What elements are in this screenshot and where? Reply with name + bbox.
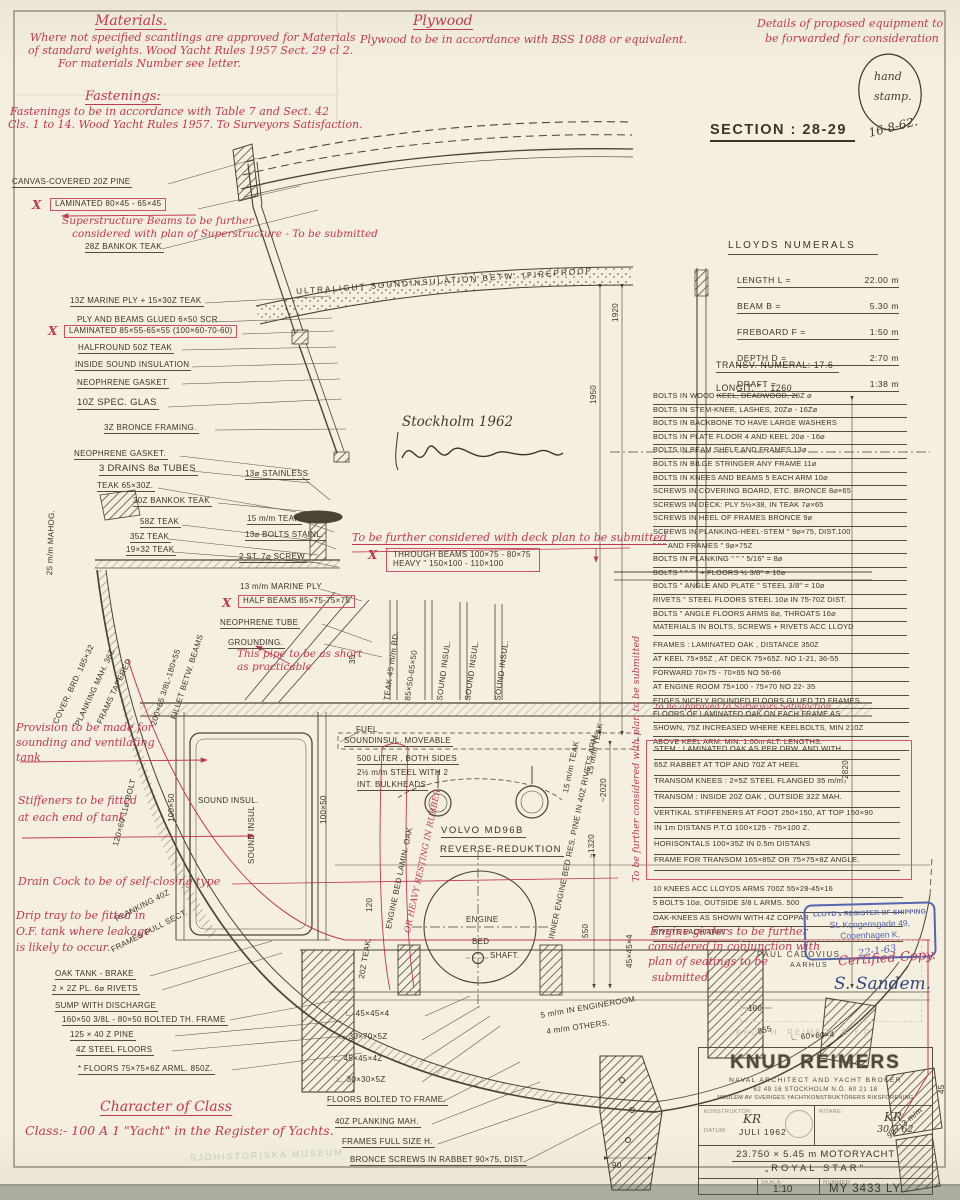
dim-45x45x4: 45×45×4	[626, 932, 635, 968]
label-laminated-top: LAMINATED 80×45 - 65×45	[50, 198, 166, 211]
lloyds-numerals-title: LLOYDS NUMERALS	[728, 240, 878, 255]
lloyds-row: FREBOARD F =1:50 m	[737, 314, 899, 340]
label-bolts13: 13⌀ BOLTS STAINL.	[245, 531, 326, 541]
label-canvas-covered: CANVAS-COVERED 20Z PINE	[12, 178, 132, 188]
architect-subtitle: NAVAL ARCHITECT AND YACHT BROKER	[699, 1077, 932, 1084]
hand-stamp-word2: stamp.	[874, 90, 912, 103]
spec-row: STEM : LAMINATED OAK AS PER DRW. AND WIT…	[654, 744, 900, 760]
label-100x50-b: 100×50	[320, 793, 329, 824]
label-bronce-framing: 3Z BRONCE FRAMING.	[104, 424, 199, 434]
label-teak35: 35Z TEAK	[130, 533, 171, 543]
spec-row: 65Z RABBET AT TOP AND 70Z AT HEEL	[654, 760, 900, 776]
spec-row: TRANSOM KNEES : 2×5Z STEEL FLANGED 35 m/…	[654, 776, 900, 792]
equipment-line2: be forwarded for consideration	[765, 33, 939, 45]
lloyds-row: BEAM B =5.30 m	[737, 288, 899, 314]
through-beams-box: THROUGH BEAMS 100×75 - 80×75 HEAVY " 150…	[386, 548, 540, 572]
spec-row: FORWARD 70×75 - 70×65 NO 56-66	[653, 668, 909, 682]
label-bronce-screws: BRONCE SCREWS IN RABBET 90×75, DIST.	[350, 1156, 527, 1166]
label-soundinsul-moveable: SOUNDINSUL. MOVEABLE	[344, 737, 453, 747]
red-superstructure-note1: Superstructure Beams to be further	[62, 216, 254, 228]
red-pipe-note1: This pipe to be as short	[237, 649, 362, 661]
label-neoprene-gasket2: NEOPHRENE GASKET.	[74, 450, 168, 460]
spec-row: AT KEEL 75×95Z , AT DECK 75×65Z. NO 1-21…	[653, 654, 909, 668]
label-halfround: HALFROUND 50Z TEAK	[78, 344, 174, 354]
red-deck-plan-note: To be further considered with deck plan …	[352, 532, 667, 545]
drawing-sheet: Materials. Where not specified scantling…	[0, 0, 960, 1200]
red-stiffeners-note2: at each end of tank	[18, 812, 125, 824]
spec-row: FRAMES : LAMINATED OAK , DISTANCE 350Z	[653, 640, 909, 654]
architect-member-line: MEDLEM AV SVERIGES YACHTKONSTRUKTÖRERS R…	[699, 1095, 932, 1101]
faint-stamp-box	[740, 940, 922, 1022]
spec-row: SCREWS IN COVERING BOARD, ETC. BRONCE 8⌀…	[653, 486, 907, 500]
label-bankok28: 28Z BANKOK TEAK	[85, 243, 164, 253]
label-laminated-mid: LAMINATED 85×55-65×55 (100×60-70-60)	[64, 325, 237, 338]
dim-120: 120	[366, 896, 375, 912]
spec-row: AT ENGINE ROOM 75×100 - 75×70 NO 22- 35	[653, 682, 909, 696]
red-x-mark: X	[48, 324, 57, 338]
spec-row: BOLTS " ANGLE FLOORS ARMS 8⌀, THROATS 16…	[653, 609, 907, 623]
dim-100: 100	[748, 1005, 764, 1014]
materials-line3: For materials Number see letter.	[58, 58, 241, 70]
label-angle1: ∟ 45×45×4	[345, 1010, 391, 1019]
red-class-title: Character of Class	[100, 1100, 232, 1116]
label-stainless13: 13⌀ STAINLESS	[245, 470, 310, 480]
label-floors-bolted: FLOORS BOLTED TO FRAME.	[327, 1096, 448, 1106]
label-pine125: 125 × 40 Z PINE	[70, 1031, 136, 1041]
stem-spec-list: STEM : LAMINATED OAK AS PER DRW. AND WIT…	[654, 744, 900, 871]
dim-1950: 1950	[590, 383, 599, 404]
spec-row: BOLTS IN PLANKING " " " 5/16" = 8⌀	[653, 554, 907, 568]
dim-550: 550	[582, 922, 591, 938]
materials-title: Materials.	[95, 14, 167, 30]
red-drip-tray-note3: is likely to occur.	[16, 942, 110, 954]
label-marine-ply13: 13Z MARINE PLY + 15×30Z TEAK	[70, 297, 204, 307]
spec-row: BOLTS IN BILGE STRINGER ANY FRAME 11⌀	[653, 459, 907, 473]
lloyds-transv: TRANSV. NUMERAL: 17.6	[716, 360, 839, 373]
roof-curves	[233, 122, 633, 201]
label-bolted160: 160×50 3/8L - 80×50 BOLTED TH. FRAME	[62, 1016, 228, 1026]
label-oak-tank: OAK TANK - BRAKE	[55, 970, 136, 980]
label-frames-full-size: FRAMES FULL SIZE H.	[342, 1138, 435, 1148]
spec-row: SHOWN, 75Z INCREASED WHERE KEELBOLTS, MI…	[653, 723, 909, 737]
skala-value: 1:10	[773, 1184, 792, 1195]
dim-1920: 1920	[612, 301, 621, 322]
spec-row: 10 KNEES ACC LLOYDS ARMS 700Z 55×28-45×1…	[653, 884, 903, 898]
label-planking-mah40: 40Z PLANKING MAH.	[335, 1118, 421, 1128]
spec-row: BOLTS IN STEM-KNEE, LASHES, 20Z⌀ - 16Z⌀	[653, 405, 907, 419]
fastenings-title: Fastenings:	[85, 90, 161, 105]
fastenings-line1: Fastenings to be in accordance with Tabl…	[10, 106, 329, 118]
label-neoprene-tube: NEOPHRENE TUBE	[220, 619, 300, 629]
datum-value: JULI 1962	[739, 1127, 787, 1137]
spec-row: SCREWS IN HEEL OF FRAMES BRONCE 9⌀	[653, 513, 907, 527]
label-drains: 3 DRAINS 8⌀ TUBES	[99, 464, 198, 476]
dim-90: 90	[612, 1162, 624, 1171]
label-angle2: ∟ 30×70×5Z	[338, 1033, 390, 1042]
red-pipe-note2: as practicable	[237, 662, 312, 674]
dim-35: 35	[349, 653, 358, 665]
architect-name: KNUD REIMERS	[699, 1052, 932, 1074]
spec-row: BOLTS IN BACKBONE TO HAVE LARGE WASHERS	[653, 418, 907, 432]
plywood-body: Plywood to be in accordance with BSS 108…	[360, 34, 687, 46]
spec-row: " " " AND FRAMES " 9⌀×75Z	[653, 541, 907, 555]
fastenings-line2: Cls. 1 to 14. Wood Yacht Rules 1957. To …	[8, 119, 363, 131]
label-teak1932: 19×32 TEAK	[126, 546, 176, 556]
architect-signature	[402, 446, 563, 458]
spec-row: FRAME FOR TRANSOM 165×85Z OR 75×75×8Z AN…	[654, 855, 900, 871]
label-angle4: ∟ 30×30×5Z	[336, 1076, 388, 1085]
spec-row: IN 1m DISTANS P.T.O 100×125 - 75×100 Z.	[654, 823, 900, 839]
bolts-spec-list: BOLTS IN WOOD KEEL, DEADWOOD, 20Z ⌀BOLTS…	[653, 391, 907, 636]
spec-row: SCREWS IN PLANKING-HEEL-STEM " 9⌀×75, DI…	[653, 527, 907, 541]
red-x-mark: X	[222, 596, 231, 610]
red-provision-note1: Provision to be made for	[16, 722, 153, 734]
dim-2020: ~2020	[600, 776, 609, 802]
spec-row: BOLTS IN PLATE FLOOR 4 AND KEEL 20⌀ - 16…	[653, 432, 907, 446]
plywood-title: Plywood	[413, 14, 473, 30]
spec-row: MATERIALS IN BOLTS, SCREWS + RIVETS ACC …	[653, 622, 907, 636]
faint-round-stamp	[785, 1110, 813, 1138]
datum-label: DATUM:	[704, 1128, 727, 1134]
red-side-vertical-note: To be further considered with plan to be…	[632, 636, 642, 882]
label-half-beams: HALF BEAMS 85×75-75×75	[238, 595, 355, 608]
label-steel-bulkheads2: INT. BULKHEADS	[357, 781, 428, 791]
red-provision-note2: sounding and ventilating	[16, 737, 155, 749]
architect-phones: 62 49 16 STOCKHOLM N.Ö. 60 21 18	[699, 1086, 932, 1093]
spec-row: BOLTS IN BEAM SHELF AND FRAMES 13⌀	[653, 445, 907, 459]
konstruktor-value: KR	[743, 1112, 761, 1126]
frames-red-note: to be approved to Surveyors Satisfaction…	[655, 703, 834, 712]
materials-line1: Where not specified scantlings are appro…	[30, 32, 356, 44]
label-engine: ENGINE	[466, 916, 500, 925]
label-through-beams2: HEAVY " 150×100 - 110×100	[393, 560, 533, 569]
dim-1320: ~1320	[588, 832, 597, 858]
hand-stamp-word1: hand	[874, 70, 902, 83]
red-provision-note3: tank	[16, 752, 41, 764]
label-500liter: 500 LITER , BOTH SIDES	[357, 755, 459, 765]
section-title: SECTION : 28-29	[710, 122, 855, 142]
label-angle3: ∟ 45×45×4Z	[333, 1055, 385, 1064]
spec-row: VERTIKAL STIFFENERS AT FOOT 250×150, AT …	[654, 808, 900, 824]
label-100x50-a: 100×50	[168, 791, 177, 822]
red-class-line: Class:- 100 A 1 "Yacht" in the Register …	[25, 1124, 334, 1138]
label-floors75: * FLOORS 75×75×6Z ARML. 850Z.	[78, 1065, 215, 1075]
label-screw7: 2 ST. 7⌀ SCREW	[239, 553, 307, 563]
spec-row: RIVETS " STEEL FLOORS STEEL 10⌀ IN 75-70…	[653, 595, 907, 609]
label-shaft: SHAFT.	[490, 952, 521, 961]
spec-row: BOLTS " ANGLE AND PLATE " STEEL 3/8" = 1…	[653, 581, 907, 595]
spec-row: BOLTS " " " " + FLOORS ½ 3/8" = 10⌀	[653, 568, 907, 582]
spec-row: TRANSOM : INSIDE 20Z OAK , OUTSIDE 32Z M…	[654, 792, 900, 808]
spec-row: BOLTS IN WOOD KEEL, DEADWOOD, 20Z ⌀	[653, 391, 907, 405]
label-sump: SUMP WITH DISCHARGE	[55, 1002, 158, 1012]
label-sound-insul-tank2: SOUND INSUL	[248, 804, 257, 864]
red-stiffeners-note1: Stiffeners to be fitted	[18, 795, 137, 807]
red-x-mark: X	[32, 198, 41, 212]
label-teak15: 15 m/m TEAK	[247, 515, 302, 525]
frames-spec-list: FRAMES : LAMINATED OAK , DISTANCE 350ZAT…	[653, 640, 909, 751]
spec-row: BOLTS IN KNEES AND BEAMS 5 EACH ARM 10⌀	[653, 473, 907, 487]
dim-45: 45	[938, 1083, 947, 1095]
lloyds-row: LENGTH L =22.00 m	[737, 262, 899, 288]
materials-line2: of standard weights. Wood Yacht Rules 19…	[28, 45, 353, 57]
stockholm-signature-text: Stockholm 1962	[402, 414, 513, 430]
label-teak58: 58Z TEAK	[140, 518, 181, 528]
label-inside-sound: INSIDE SOUND INSULATION	[75, 361, 191, 371]
boat-name: „ROYAL STAR"	[699, 1163, 932, 1174]
equipment-line1: Details of proposed equipment to	[757, 18, 943, 30]
label-steel-floors: 4Z STEEL FLOORS	[76, 1046, 154, 1056]
ritare-label: RITARE:	[819, 1109, 843, 1115]
girders-note-line1: Engine girders to be further	[650, 926, 808, 938]
red-drain-cock-note: Drain Cock to be of self-closing type	[18, 876, 220, 888]
label-bankok30: 30Z BANKOK TEAK	[133, 497, 212, 507]
dim-2820: ~2820	[842, 758, 851, 784]
label-fuel: FUEL	[356, 726, 380, 735]
label-bed: BED	[472, 938, 491, 947]
girders-note-line4: submitted	[652, 972, 708, 984]
label-pl2x2: 2 × 2Z PL. 6⌀ RIVETS	[52, 985, 140, 995]
label-neoprene-gasket1: NEOPHRENE GASKET	[77, 379, 169, 389]
spec-row: HORISONTALS 100×35Z IN 0.5m DISTANS	[654, 839, 900, 855]
spec-row: SCREWS IN DECK: PLY 5½×38, IN TEAK 7⌀×65	[653, 500, 907, 514]
red-superstructure-note2: considered with plan of Superstructure -…	[72, 229, 378, 241]
red-x-mark: X	[368, 548, 377, 562]
label-volvo-md96b: VOLVO MD96B	[441, 826, 526, 838]
boat-dimensions: 23.750 × 5.45 m MOTORYACHT	[699, 1149, 932, 1160]
label-reverse-reduction: REVERSE-REDUKTION	[440, 845, 564, 857]
label-marine-ply-13mm: 13 m/m MARINE PLY	[240, 583, 324, 592]
label-spec-glas: 10Z SPEC. GLAS	[77, 398, 159, 410]
nummer-value: MY 3433 LY.	[829, 1183, 904, 1195]
label-teak6530: TEAK 65×30Z.	[97, 482, 155, 492]
label-steel-bulkheads1: 2½ m/m STEEL WITH 2	[357, 769, 450, 778]
